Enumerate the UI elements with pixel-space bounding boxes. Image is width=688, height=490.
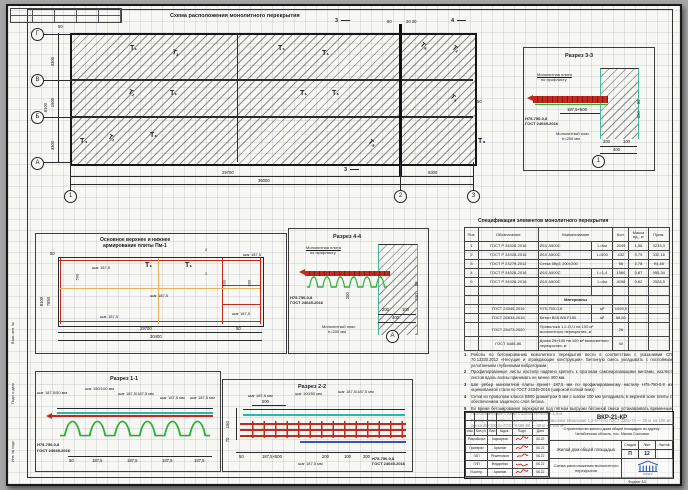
stamp-sign-row: Н.контр. Архипов 06.22 [466,469,549,477]
s11-callout-5: шаг 187,5 мм [190,396,215,400]
s11-dim-5: 187,5 [194,459,204,463]
s22-dim-b2: 187,5×500 [262,455,282,459]
s11-rebar-line [52,415,213,417]
s11-callout-1: шаг 187,5/50 мм [37,391,67,395]
signature-mark [512,461,532,469]
pm1-flag2-bot: 2 [205,272,207,276]
pm1-callout-2: шаг 187,5 [150,294,168,298]
plan-beam-line-b [70,116,473,118]
axis-circle-b: Б [31,111,44,124]
spec-row: 1ГОСТ Р 34028-2016 Ø10 А500СL=6м 20491,5… [465,242,670,251]
axis-circle-g: Г [31,28,44,41]
s22-left-dim-1: 150 [226,421,230,428]
pm1-rebar-left [60,258,61,324]
s44-dimline-2 [378,322,416,323]
spec-h-qty: Кол. [613,228,629,242]
stamp-stage-table: Стадия Лист Листов П 12 [621,440,673,459]
axis-ext-v [43,80,70,81]
s33-slab-bar [533,96,608,103]
s22-dim-500: 500 [262,400,269,404]
s44-axis-circle: А [386,330,399,343]
slab-mark: Т₁ [332,90,339,97]
s33-step-dimline [560,113,600,114]
spec-material-row: ГОСТ 24045-2016 Н75-750-0,8м² 1059,5 [465,305,670,314]
s33-title: Разрез 3-3 [565,53,593,59]
plan-offset-20-axis2: 20 20 [406,20,416,24]
plan-ext-3 [473,162,474,190]
plan-joint-line [237,33,238,162]
spec-row: 3ГОСТ Р 23279-2012 Сетка 5Вр1 200×200 56… [465,260,670,269]
section3-flag-top: 3 [335,18,338,24]
s33-dim-b2: 100 [623,140,630,144]
spec-materials-header: Материалы [538,296,613,305]
stamp-header-row: Изм.Кол.уч. Лист№док. Подп.Дата [466,428,549,436]
s11-mesh-line [57,412,213,414]
plan-title: Схема расположения монолитного перекрыти… [170,13,300,19]
s22-aux-blue-line [300,441,406,443]
slab-mark: Т₁ [300,90,307,97]
axis-circle-v: В [31,74,44,87]
section4-flag-top: 4 [451,18,454,24]
spec-h-doc: Обозначение [478,228,538,242]
pm1-mesh-h [60,288,260,289]
revision-mini-table [10,8,122,23]
s22-dim-b5: 200 [363,455,370,459]
axis-circle-a: А [31,157,44,170]
s33-axis-circle: 1 [592,155,605,168]
s33-belt-label-2: h=200 мм [562,137,580,141]
s22-callout-1: шаг 187,5 мм [248,394,273,398]
frame-label-vzam: Взам. инв. № [12,322,16,344]
s22-bottom-callout: шаг 187,5 мм [298,462,323,466]
stamp-drawing-title-cell: Схема расположения монолитного перекрыти… [549,458,622,479]
s33-dim-total: 400 [613,148,620,152]
section3-flag-bottom: 3 [344,167,347,173]
s22-dimline-bottom [236,452,406,453]
pm1-dim-50-top: 50 [50,252,55,256]
s44-dim-b1: 200 [382,308,389,312]
signature-mark [512,452,532,460]
s11-dimline [68,456,212,457]
s22-left-dimline [236,408,237,440]
s22-sheet-label-2: ГОСТ 24045-2016 [372,462,405,466]
pm1-dimline-b1 [58,332,262,333]
s44-dim-total: 400 [392,316,399,320]
slab-mark-left-out: Т₄ [80,138,88,145]
plan-dim-left-1: 3300 [51,57,55,66]
slab-mark-right-out: Т₃ [478,138,486,145]
pm1-rebar-h2 [222,304,261,305]
s11-callout-4: шаг 187,5 мм [160,396,185,400]
s22-dim-b3: 200 [322,455,329,459]
s22-rebar-ties [242,421,406,438]
note-item: 2Профилированные листы настила надёжно к… [464,369,672,380]
pm1-callout-3: шаг 187,5 [100,315,118,319]
s11-sheet-label-1: Н75-750-0,8 [37,443,59,447]
pm1-callout-1: шаг 187,5 [92,266,110,270]
s22-callout-3: шаг 187,5/187,5 мм [338,390,374,394]
pm1-mark-1: Т₁ [145,262,152,269]
s33-deck-line [535,104,608,105]
pm1-dim-500a: 500 [76,274,80,281]
s22-left-dim-2: 70 [226,438,230,443]
spec-row: 2ГОСТ Р 34028-2016 Ø10 А500СL=500 4320,7… [465,251,670,260]
s44-plate-label-2: по профлисту [310,251,336,255]
pm1-rebar-h1 [222,285,261,286]
pm1-flag2-top: 2 [205,248,207,252]
section3-flag-line [341,20,350,21]
plan-dimline-left [58,33,59,162]
axis-ext-a [43,162,70,163]
plan-dim-span2: 6300 [428,171,437,175]
note-item: 1Работы по бетонированию монолитного пер… [464,352,672,368]
s33-step-dim: 187,5×500 [567,108,587,112]
spec-h-note: Прим. [648,228,669,242]
s11-dim-2: 187,5 [92,459,102,463]
slab-mark: Т₁ [150,132,157,139]
spec-header-row: Поз. Обозначение Наименование Кол. Масса… [465,228,670,242]
plan-dimline-2 [70,184,473,185]
s44-sheet-label-2: ГОСТ 24045-2016 [290,301,323,305]
university-logo-caption: ЮУрГУ [643,472,652,476]
university-logo-icon [637,460,659,472]
pm1-mesh-v [158,258,159,324]
pm1-callout-4: шаг 187,5 [243,253,261,257]
plan-dim-left-3: 3300 [51,141,55,150]
plan-beam-line-v [70,79,473,81]
s33-plate-label-2: по профлисту [541,78,567,82]
s44-dim-b2: 100 [402,308,409,312]
pm1-dimline-b2 [58,340,262,341]
axis-ext-b [43,117,70,118]
pm1-slab-outline [58,257,264,327]
note-item: 3Шаг рёбер монолитной плиты принят 187,5… [464,382,672,393]
plan-offset-50-axis2: 50 [387,20,392,24]
stamp-sign-row: Разработал Карнаухов 06.22 [466,436,549,444]
pm1-title-2: армирование плиты Пм-1 [103,244,167,250]
stamp-project-cell: Строительство жилого дома общей площадью… [549,424,674,441]
frame-label-inv: Инв. № подл. [12,440,16,462]
s33-side-dim-2: 150 [637,111,641,118]
pm1-callout-5: шаг 187,5 [232,312,250,316]
section4-flag-line [457,20,466,21]
pm1-rebar-bottom [59,321,261,322]
axis-circle-3: 3 [467,190,480,203]
pm1-dim-b3: 30400 [150,335,162,339]
s11-dim-3: 187,5 [127,459,137,463]
spec-table: Поз. Обозначение Наименование Кол. Масса… [464,227,670,351]
slab-mark: Т₁ [322,50,329,57]
signature-mark [512,444,532,452]
drawing-sheet: Взам. инв. № Подп. и дата Инв. № подл. С… [0,0,688,490]
s22-mesh-line [243,414,405,416]
pm1-rebar-top [59,260,261,261]
s44-belt-label-2: h=200 мм [328,330,346,334]
slab-mark: Т₁ [130,45,137,52]
s22-dim500-line [252,405,286,406]
note-item: 4Сетки из проволоки класса В500 диаметро… [464,394,672,405]
spec-materials-header-row: Материалы [465,296,670,305]
spec-h-mass: Масса ед., кг [629,228,648,242]
s22-dim-b4: 100 [344,455,351,459]
title-block: Изм.Кол.уч. Лист№док. Подп.Дата Разработ… [464,411,674,479]
s11-dim-1: 50 [69,459,74,463]
spec-material-row: ГОСТ 8486-86 Доска 25×100 на 100 м² моно… [465,337,670,351]
signature-mark [512,469,532,477]
s11-callout-2: шаг 150/100 мм [85,387,114,391]
spec-material-row: ГОСТ 25473-2020 Проволока 1,2-О-Ч на 100… [465,323,670,337]
stamp-object-label: Жилой дом общей площадью [557,447,615,452]
stamp-sign-row: ГАП Решетников 06.22 [466,452,549,460]
plan-dim-total: 36000 [258,179,270,183]
pm1-mark-2: Т₁ [185,262,192,269]
stamp-doc-code: ВКР-21-КР [597,415,627,421]
s33-dimline-2 [600,153,637,154]
axis-circle-2: 2 [394,190,407,203]
s44-title: Разрез 4-4 [333,234,361,240]
spec-row: 4ГОСТ Р 34028-2016 Ø10 А500СL=1,4 15600,… [465,269,670,278]
stamp-logo-cell: ЮУрГУ [621,458,674,479]
frame-label-podp: Подп. и дата [12,383,16,404]
format-label: Формат А3 [628,481,646,485]
s22-top-line [243,409,405,410]
pm1-dim-b1: 29700 [140,327,152,331]
pm1-dim-500b: 500 [223,280,227,287]
plan-dim-left-total: 8100 [44,103,48,112]
signature-mark [512,436,532,444]
pm1-dim-b2: 50 [236,327,241,331]
stamp-sign-row: ГИП Федоренко 06.22 [466,461,549,469]
s44-deck-profile [307,276,387,288]
spec-h-name: Наименование [538,228,613,242]
section3-flag-line-b [350,169,359,170]
stamp-drawing-title: Схема расположения монолитного перекрыти… [550,463,622,473]
stamp-project-line2: Челябинская область, пос. Малая Сосновка [575,432,649,437]
pm1-dim-500c: 500 [248,280,252,287]
stamp-sign-row: Проверил Архипов 06.22 [466,444,549,452]
pm1-dim-left-2: 8100 [40,297,44,306]
s11-deck-profile [60,420,210,437]
slab-mark: Т₁ [278,45,285,52]
s44-side-dim-1: 50 [415,282,419,287]
spec-title: Спецификация элементов монолитного перек… [478,219,608,225]
s22-title: Разрез 2-2 [298,384,326,390]
axis-ext-g [43,34,70,35]
s44-dim-200: 200 [346,292,350,299]
spec-material-row: ГОСТ 26633-2015 Бетон В25 W6 F150м³ 56,5… [465,314,670,323]
s22-callout-2: шаг 100/50 мм [295,392,322,396]
spec-row: 5ГОСТ Р 34028-2016 Ø10 А500СL=4м 40980,6… [465,278,670,287]
plan-offset-50-top: 50 [58,25,63,29]
slab-mark: Т₁ [170,90,177,97]
s33-dim-b1: 200 [603,140,610,144]
stamp-signature-table: Изм.Кол.уч. Лист№док. Подп.Дата Разработ… [465,412,549,477]
spec-h-pos: Поз. [465,228,479,242]
plan-dimline-1 [70,176,473,177]
pm1-rebar-v1 [222,258,223,324]
s33-sheet-label-2: ГОСТ 24045-2016 [525,122,558,126]
plan-axis2-line [399,24,402,177]
plan-offset-50-right: 50 [477,100,482,104]
s11-top-line [57,408,213,409]
pm1-dim-left-1: 7850 [47,297,51,306]
s11-dim-4: 187,5 [162,459,172,463]
spec-spacer-row [465,287,670,296]
s44-side-dim-2: 150 [415,293,419,300]
s11-sheet-label-2: ГОСТ 24045-2016 [37,449,70,453]
pm1-rebar-right [260,258,261,324]
stamp-object-cell: Жилой дом общей площадью [549,440,622,459]
slab-plan [70,33,477,166]
s33-side-dim-1: 50 [637,100,641,105]
s22-dim-b1: 50 [239,455,244,459]
s11-callout-3: шаг 187,5/187,5 мм [118,392,154,396]
s11-title: Разрез 1-1 [110,376,138,382]
axis-circle-1: 1 [64,190,77,203]
plan-dim-left-2: 1500 [51,98,55,107]
plan-dim-span1: 29700 [222,171,234,175]
